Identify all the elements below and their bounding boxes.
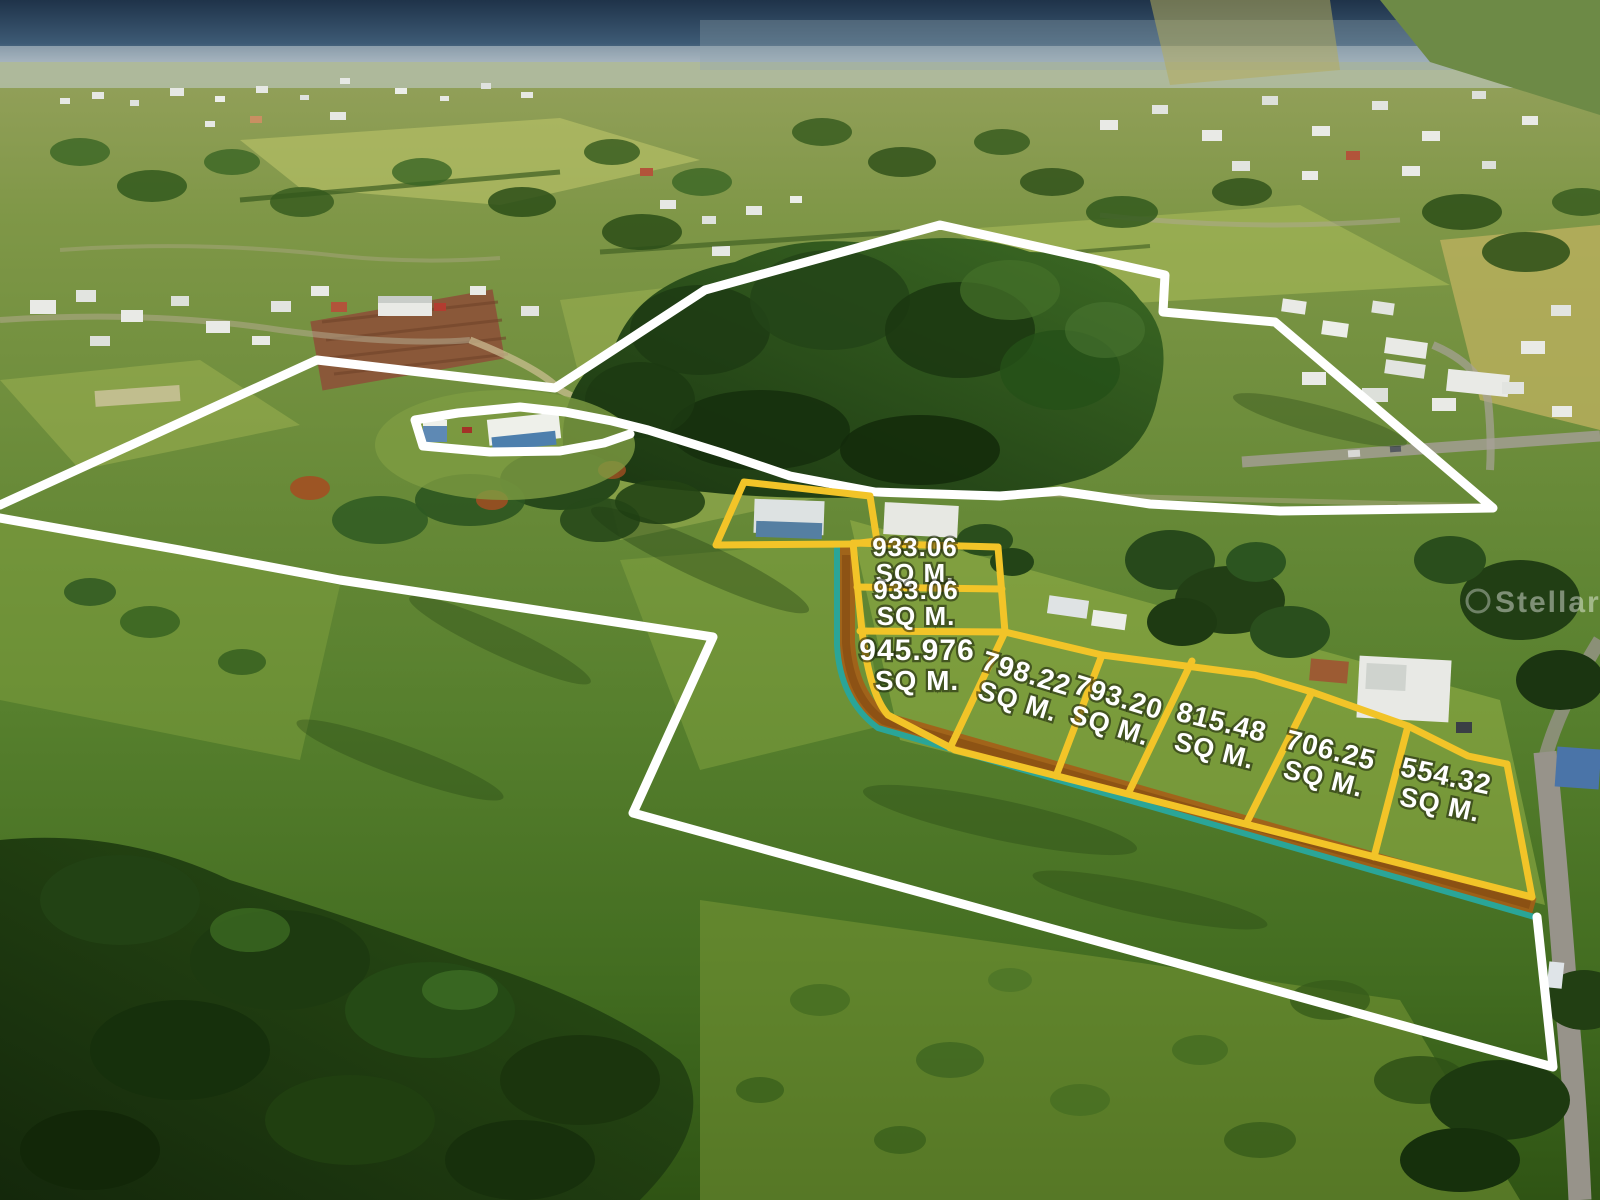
lot-house-wall [756,521,823,539]
house-block [660,200,676,209]
lot-label-2: 933.06 SQ M. [873,575,959,631]
tree [64,578,116,606]
house-block [206,321,230,333]
house-block [440,96,449,101]
house-block [521,92,533,98]
tree [602,214,682,250]
tree [1400,1128,1520,1192]
tree [210,908,290,952]
house-block [331,302,347,312]
house-block [1302,372,1326,385]
tree [50,138,110,166]
shed [423,426,447,442]
house-block [205,121,215,127]
aerial-lot-photo: 933.06 SQ M. 933.06 SQ M. 945.976 SQ M. … [0,0,1600,1200]
house-block [121,310,143,322]
golden-field [1150,0,1340,85]
house-block [92,92,104,99]
tree [445,1120,595,1200]
lot-line-row-bottom [860,631,1005,632]
two-story-house-roof [1365,663,1406,691]
house-block [521,306,539,316]
tree [1212,178,1272,206]
car [1456,722,1472,733]
house-block [1422,131,1440,141]
tree [1422,194,1502,230]
bush [1172,1035,1228,1065]
house-block [790,196,802,203]
house-block [130,100,139,106]
tree [1250,606,1330,658]
blue-tarp-house [1555,747,1600,790]
bush [1224,1122,1296,1158]
tree [218,649,266,675]
tree [20,1110,160,1190]
tree [392,158,452,186]
bush [736,1077,784,1103]
car [1547,961,1565,988]
flowering-tree [290,476,330,500]
car [1348,450,1360,458]
tree [488,187,556,217]
house-block [1551,305,1571,316]
lot-unit-text: SQ M. [875,665,959,696]
tree [345,962,515,1058]
shack [1309,658,1349,683]
house-block [1472,91,1486,99]
bush [1050,1084,1110,1116]
tree [792,118,852,146]
house-block [311,286,329,296]
house-block [1502,382,1524,394]
house-block [90,336,110,346]
tree [1226,542,1286,582]
tree [265,1075,435,1165]
tree [120,606,180,638]
warehouse-roof [378,296,432,303]
tree [1086,196,1158,228]
tree [270,187,334,217]
house-block [1302,171,1318,180]
house-block [215,96,225,102]
tree [332,496,428,544]
house-block [256,86,268,93]
house-block [1432,398,1456,411]
house-block [250,116,262,123]
tree [1147,598,1217,646]
house-block [1482,161,1496,169]
house-block [702,216,716,224]
house-block [30,300,56,314]
house-block [171,296,189,306]
bush [790,984,850,1016]
car [462,427,472,433]
house-block [1552,406,1572,417]
house-block [1262,96,1278,105]
house-block [76,290,96,302]
house-block [640,168,653,176]
bush [988,968,1032,992]
house-block [1402,166,1420,176]
tree [422,970,498,1010]
watermark-text: StellarMLS [1495,586,1600,619]
lot-area-text: 945.976 [859,634,974,667]
house-block [1521,341,1545,354]
tree [868,147,936,177]
tree [1020,168,1084,196]
tree [1065,302,1145,358]
lot-unit-text: SQ M. [877,601,956,631]
house-block [300,95,309,100]
lot-label-3: 945.976 SQ M. [859,634,974,696]
tree [90,1000,270,1100]
tree [500,1035,660,1125]
tree [40,855,200,945]
house-block [481,83,491,89]
house-block [252,336,270,345]
house-block [1372,101,1388,110]
bush [874,1126,926,1154]
tree [974,129,1030,155]
house-block [1202,130,1222,141]
tree [670,390,850,470]
house-block [712,246,730,256]
house-block [340,78,350,84]
tree [1414,536,1486,584]
tree [1482,232,1570,272]
house-block [1152,105,1168,114]
house-block [1346,151,1360,160]
house-block [1522,116,1538,125]
tree [672,168,732,196]
house-block [746,206,762,215]
house-block [330,112,346,120]
tree [584,139,640,165]
house-block [271,301,291,312]
bush [916,1042,984,1078]
tree [1516,650,1600,710]
house-block [1232,161,1250,171]
aerial-photo-canvas: 933.06 SQ M. 933.06 SQ M. 945.976 SQ M. … [0,0,1600,1200]
tree [960,260,1060,320]
house-block [170,88,184,96]
tree [1430,1060,1570,1140]
house-block [60,98,70,104]
house-block [1312,126,1330,136]
tree [840,415,1000,485]
house-block [470,286,486,295]
truck [434,303,446,311]
tree [204,149,260,175]
house-block [1100,120,1118,130]
house-block [395,88,407,94]
tree [117,170,187,202]
